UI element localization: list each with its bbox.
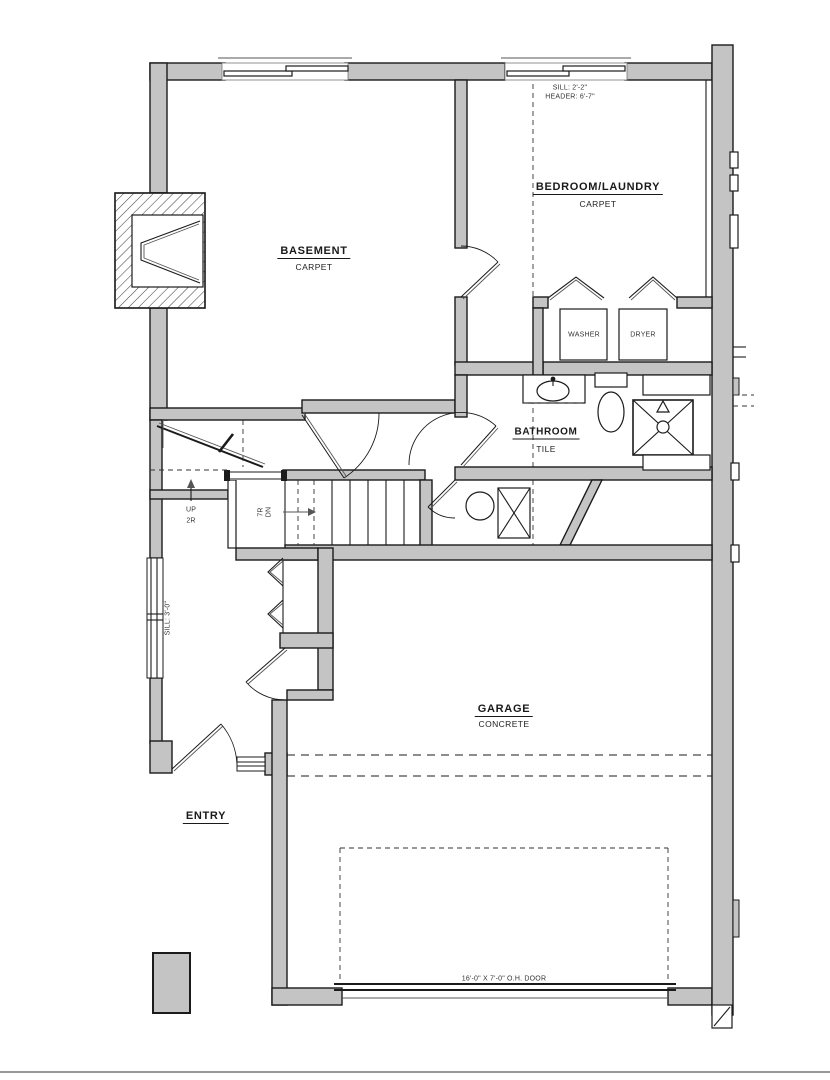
bedroom-laundry-room-label: BEDROOM/LAUNDRY: [533, 181, 663, 195]
washer-label: WASHER: [568, 332, 600, 339]
stairs-down-label: 7R DN: [258, 507, 275, 518]
exterior-walls: [150, 45, 754, 1028]
floor-plan-sheet: BASEMENT CARPET BEDROOM/LAUNDRY CARPET S…: [0, 0, 830, 1080]
bathroom-room-label: BATHROOM: [513, 427, 580, 440]
basement-floor-label: CARPET: [296, 262, 333, 272]
fireplace: [115, 193, 205, 308]
dryer-label: DRYER: [630, 332, 655, 339]
stairs-down-direction: DN: [266, 507, 274, 518]
interior-walls: [150, 80, 712, 700]
stairs-up-label: UP: [186, 507, 196, 514]
entry-window-sill-note: SILL: 3'-0": [165, 601, 172, 635]
entry-room-label: ENTRY: [183, 810, 229, 824]
entry-window: [147, 558, 163, 678]
garage-floor-lines: [287, 755, 712, 776]
toilet: [595, 373, 627, 432]
floor-plan-drawing: [0, 0, 830, 1080]
bedroom-laundry-floor-label: CARPET: [580, 199, 617, 209]
bedroom-window-sill-note: SILL: 2'-2": [553, 85, 587, 92]
overhead-garage-door: [334, 984, 676, 998]
basement-window: [218, 58, 352, 80]
stairs-up-risers-label: 2R: [186, 518, 195, 525]
shower: [633, 400, 693, 455]
entry-sidelite: [237, 757, 265, 771]
furnace: [498, 488, 530, 538]
garage-floor-label: CONCRETE: [479, 719, 530, 729]
bedroom-window: [501, 58, 631, 80]
basement-room-label: BASEMENT: [277, 245, 350, 259]
bedroom-window-header-note: HEADER: 6'-7": [545, 94, 595, 101]
stairs-down-risers: 7R: [258, 507, 266, 518]
stairs: [150, 420, 404, 545]
porch-pier: [153, 953, 190, 1013]
garage-door-track-dashed: [340, 848, 668, 985]
water-heater: [466, 492, 494, 520]
garage-room-label: GARAGE: [475, 703, 533, 717]
garage-door-size-note: 16'-0" X 7'-0" O.H. DOOR: [462, 976, 546, 983]
bathroom-vanity-sink: [523, 375, 585, 403]
bathroom-floor-label: TILE: [536, 444, 556, 454]
